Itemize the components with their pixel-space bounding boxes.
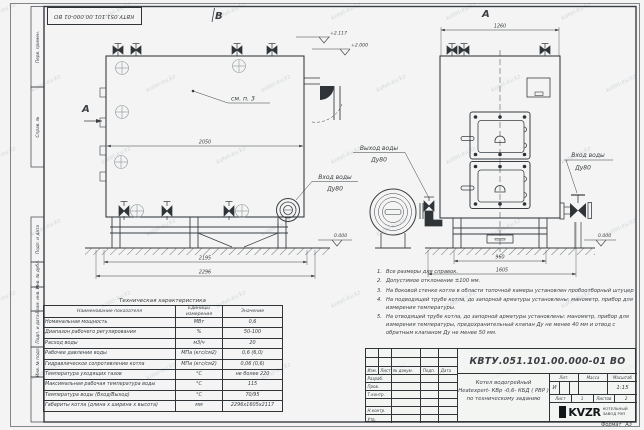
elevation-text: +2.000 xyxy=(351,43,368,49)
param-value: 2296х1605х2117 xyxy=(223,401,283,411)
tech-table-title: Техническая характеристика xyxy=(43,298,282,304)
col-header: Изм. xyxy=(366,367,379,375)
table-row: Рабочее давление водыМПа (кгс/см2)0,6 (6… xyxy=(44,349,283,359)
note-item: 4.На подводящей трубе котла, до запорной… xyxy=(377,297,636,313)
note-text: Допустимое отклонение ±100 мм. xyxy=(386,278,480,286)
param-value: 0,6 (6,0) xyxy=(223,349,283,359)
sheets-value: 2 xyxy=(615,395,637,403)
ground-right xyxy=(425,248,595,255)
section-a-label: А xyxy=(81,104,90,115)
water-inlet-right-label: Вход воды Ду80 xyxy=(564,152,613,193)
left-view-boiler-side xyxy=(85,44,342,256)
table-row: Расход водым3/ч20 xyxy=(44,338,283,348)
col-header: Дата xyxy=(439,367,457,375)
label-text: Выход воды xyxy=(360,145,398,152)
format-label: Формат А3 xyxy=(558,422,636,428)
margin-label: Инв. № подл. xyxy=(35,347,41,377)
table-row: Номинальная мощностьМВт0,6 xyxy=(44,318,283,328)
scale-value: 1:15 xyxy=(608,382,637,395)
section-arrow: А xyxy=(81,104,102,121)
dim-text: 2195 xyxy=(199,256,211,262)
hinge-icons xyxy=(100,88,106,181)
left-support-frame xyxy=(110,217,288,248)
title-line: Котел водогрейный xyxy=(458,379,549,387)
param-name: Температура воды (Вход/Выход) xyxy=(44,390,176,400)
table-row: Максимальная рабочая температура воды°С1… xyxy=(44,380,283,390)
note-item: 3.На боковой стенке котла в области топо… xyxy=(377,288,636,296)
title-block-meta: Лит. Масса Масштаб И 1:15 Лист 1 xyxy=(550,374,637,421)
param-unit: м3/ч xyxy=(176,338,223,348)
param-value: 0,06 (0,6) xyxy=(223,359,283,369)
param-value: не более 220 xyxy=(223,369,283,379)
sheet-label: Лист xyxy=(550,395,572,403)
margin-label: Перв. примен. xyxy=(35,31,41,63)
param-unit: МПа (кгс/см2) xyxy=(176,359,223,369)
param-value: 70/95 xyxy=(223,390,283,400)
table-row: Габариты котла (длина х ширина х высота)… xyxy=(44,401,283,411)
label-text: Ду80 xyxy=(326,186,343,193)
param-value: 20 xyxy=(223,338,283,348)
sig-row-label: Пров. xyxy=(366,383,392,391)
drawing-sheet: kotel-kv.kzkotel-kv.kzkotel-kv.kzkotel-k… xyxy=(0,0,644,430)
water-outlet-label: Выход воды Ду80 xyxy=(353,145,429,198)
lit-value: И xyxy=(550,382,560,395)
param-unit: МПа (кгс/см2) xyxy=(176,349,223,359)
title-block: Изм. Лист № докум. Подп. Дата Разраб. Пр… xyxy=(365,348,636,422)
format-caption: Формат xyxy=(601,422,621,428)
dim-text: 1260 xyxy=(494,24,506,30)
kvzr-emblem-icon xyxy=(559,406,566,418)
water-outlet-valve xyxy=(420,197,442,226)
col-header: Значение xyxy=(223,306,283,318)
document-title: Котел водогрейный Heatexpert- КВр -0,6- … xyxy=(458,374,550,421)
margin-labels: Перв. примен. Справ. № Подп. и дата Инв.… xyxy=(35,31,41,377)
top-stamp: КВТУ.051.101.00.000-01 ВО xyxy=(47,7,142,25)
margin-label: Подп. и дата xyxy=(35,314,41,344)
callout-text: см. п. 3 xyxy=(231,96,255,103)
elevation-mark-top: +2.117 xyxy=(296,31,347,44)
sig-row-label xyxy=(366,399,392,407)
margin-label: Взам. инв. № xyxy=(35,284,41,314)
company-name-line: ЗАВОД РЭП xyxy=(603,412,628,417)
view-a-label: А xyxy=(481,9,490,20)
param-unit: °С xyxy=(176,390,223,400)
param-name: Температура уходящих газов xyxy=(44,369,176,379)
table-row: Гидравлическое сопротивление котлаМПа (к… xyxy=(44,359,283,369)
table-row: Температура воды (Вход/Выход)°С70/95 xyxy=(44,390,283,400)
water-inlet-flange xyxy=(277,199,300,222)
col-header: Наименование показателя xyxy=(44,306,176,318)
note-text: На боковой стенке котла в области топочн… xyxy=(386,288,634,296)
view-b-label: В xyxy=(215,11,223,22)
water-inlet-left-label: Вход воды Ду80 xyxy=(296,174,358,200)
param-unit: % xyxy=(176,328,223,338)
elevation-text: 0.000 xyxy=(334,233,347,239)
tech-table: Наименование показателя Единицы измерени… xyxy=(43,305,283,412)
sig-row-label: Утв. xyxy=(366,415,392,423)
ground-left xyxy=(85,248,330,255)
company-name: КОТЕЛЬНЫЙ ЗАВОД РЭП xyxy=(603,407,628,416)
label-text: Ду80 xyxy=(370,157,387,164)
right-view-boiler-front xyxy=(425,44,595,256)
note-number: 4. xyxy=(377,297,386,313)
param-unit: °С xyxy=(176,380,223,390)
label-text: Вход воды xyxy=(571,152,605,159)
col-header: Единицы измерения xyxy=(176,306,223,318)
sheet-value: 1 xyxy=(572,395,594,403)
col-header: Лист xyxy=(379,367,392,375)
param-name: Габариты котла (длина х ширина х высота) xyxy=(44,401,176,411)
note-item: 2.Допустимое отклонение ±100 мм. xyxy=(377,278,636,286)
front-top-valve-icons xyxy=(447,44,550,57)
note-text: Все размеры для справок. xyxy=(386,269,458,277)
format-value: А3 xyxy=(625,422,632,428)
dim-text: 960 xyxy=(495,255,504,261)
sig-row-label: Т.контр. xyxy=(366,391,392,399)
dim-body-length: 2050 xyxy=(107,140,303,147)
callouts: В А А см. п. 3 Выход воды Ду80 Вход воды xyxy=(81,8,613,200)
note-number: 2. xyxy=(377,278,386,286)
dim-text: 2050 xyxy=(199,140,211,146)
boiler-door-upper xyxy=(461,112,530,159)
margin-label: Справ. № xyxy=(35,116,41,137)
sheets-label: Листов xyxy=(594,395,616,403)
scale-label: Масштаб xyxy=(608,374,637,382)
param-name: Расход воды xyxy=(44,338,176,348)
sig-row-label: Разраб. xyxy=(366,375,392,383)
note-number: 1. xyxy=(377,269,386,277)
param-value: 50-100 xyxy=(223,328,283,338)
boiler-door-lower xyxy=(461,162,530,209)
param-value: 115 xyxy=(223,380,283,390)
table-row: Температура уходящих газов°Сне более 220 xyxy=(44,369,283,379)
note-text: На подводящей трубе котла, до запорной а… xyxy=(386,297,636,313)
kvzr-logo-text: KVZR xyxy=(568,406,600,419)
param-name: Рабочее давление воды xyxy=(44,349,176,359)
flue-elbow xyxy=(304,78,342,122)
table-row: Диапазон рабочего регулирования%50-100 xyxy=(44,328,283,338)
title-block-main: КВТУ.051.101.00.000-01 ВО Котел водогрей… xyxy=(458,349,637,421)
mass-label: Масса xyxy=(579,374,608,382)
callout-see-item: см. п. 3 xyxy=(192,90,270,103)
param-unit: МВт xyxy=(176,318,223,328)
note-number: 3. xyxy=(377,288,386,296)
elevation-text: 0.000 xyxy=(598,233,611,239)
label-text: Ду80 xyxy=(574,165,591,172)
tech-characteristics: Техническая характеристика Наименование … xyxy=(43,298,282,412)
param-name: Номинальная мощность xyxy=(44,318,176,328)
top-valve-icons xyxy=(113,44,277,57)
elevation-mark-mid: +2.000 xyxy=(312,43,368,56)
dim-text: 2296 xyxy=(199,270,211,276)
lit-label: Лит. xyxy=(550,374,579,382)
note-item: 1.Все размеры для справок. xyxy=(377,269,636,277)
elevation-mark-zero-right: 0.000 xyxy=(584,233,616,246)
title-block-signature-grid: Изм. Лист № докум. Подп. Дата Разраб. Пр… xyxy=(366,349,458,421)
col-header: № докум. xyxy=(392,367,422,375)
title-line: Heatexpert- КВр -0,6- КБД ( РВР ) xyxy=(458,387,549,395)
elevation-text: +2.117 xyxy=(330,31,347,37)
note-item: 5.На отводящей трубе котла, до запорной … xyxy=(377,314,636,337)
margin-label: Подп. и дата xyxy=(35,225,41,255)
sig-row-label: Н.контр. xyxy=(366,407,392,415)
notes-list: 1.Все размеры для справок. 2.Допустимое … xyxy=(377,269,636,339)
label-text: Вход воды xyxy=(318,174,352,181)
title-line: по техническому заданию xyxy=(458,395,549,403)
dimensions: 2050 2195 2296 1260 960 xyxy=(96,24,576,280)
elevation-mark-zero-left: 0.000 xyxy=(318,233,352,246)
note-number: 5. xyxy=(377,314,386,337)
mass-value xyxy=(579,382,608,395)
param-name: Максимальная рабочая температура воды xyxy=(44,380,176,390)
company-logo: KVZR КОТЕЛЬНЫЙ ЗАВОД РЭП xyxy=(550,403,637,421)
param-unit: мм xyxy=(176,401,223,411)
param-unit: °С xyxy=(176,369,223,379)
document-number: КВТУ.051.101.00.000-01 ВО xyxy=(458,349,637,374)
table-header-row: Наименование показателя Единицы измерени… xyxy=(44,306,283,318)
position-mark-icons xyxy=(115,60,249,218)
param-name: Диапазон рабочего регулирования xyxy=(44,328,176,338)
param-value: 0,6 xyxy=(223,318,283,328)
blower-fan xyxy=(370,189,416,248)
param-name: Гидравлическое сопротивление котла xyxy=(44,359,176,369)
top-stamp-text: КВТУ.051.101.00.000-01 ВО xyxy=(54,13,134,19)
note-text: На отводящей трубе котла, до запорной ар… xyxy=(386,314,636,337)
col-header: Подп. xyxy=(421,367,439,375)
inspection-box xyxy=(527,78,550,97)
